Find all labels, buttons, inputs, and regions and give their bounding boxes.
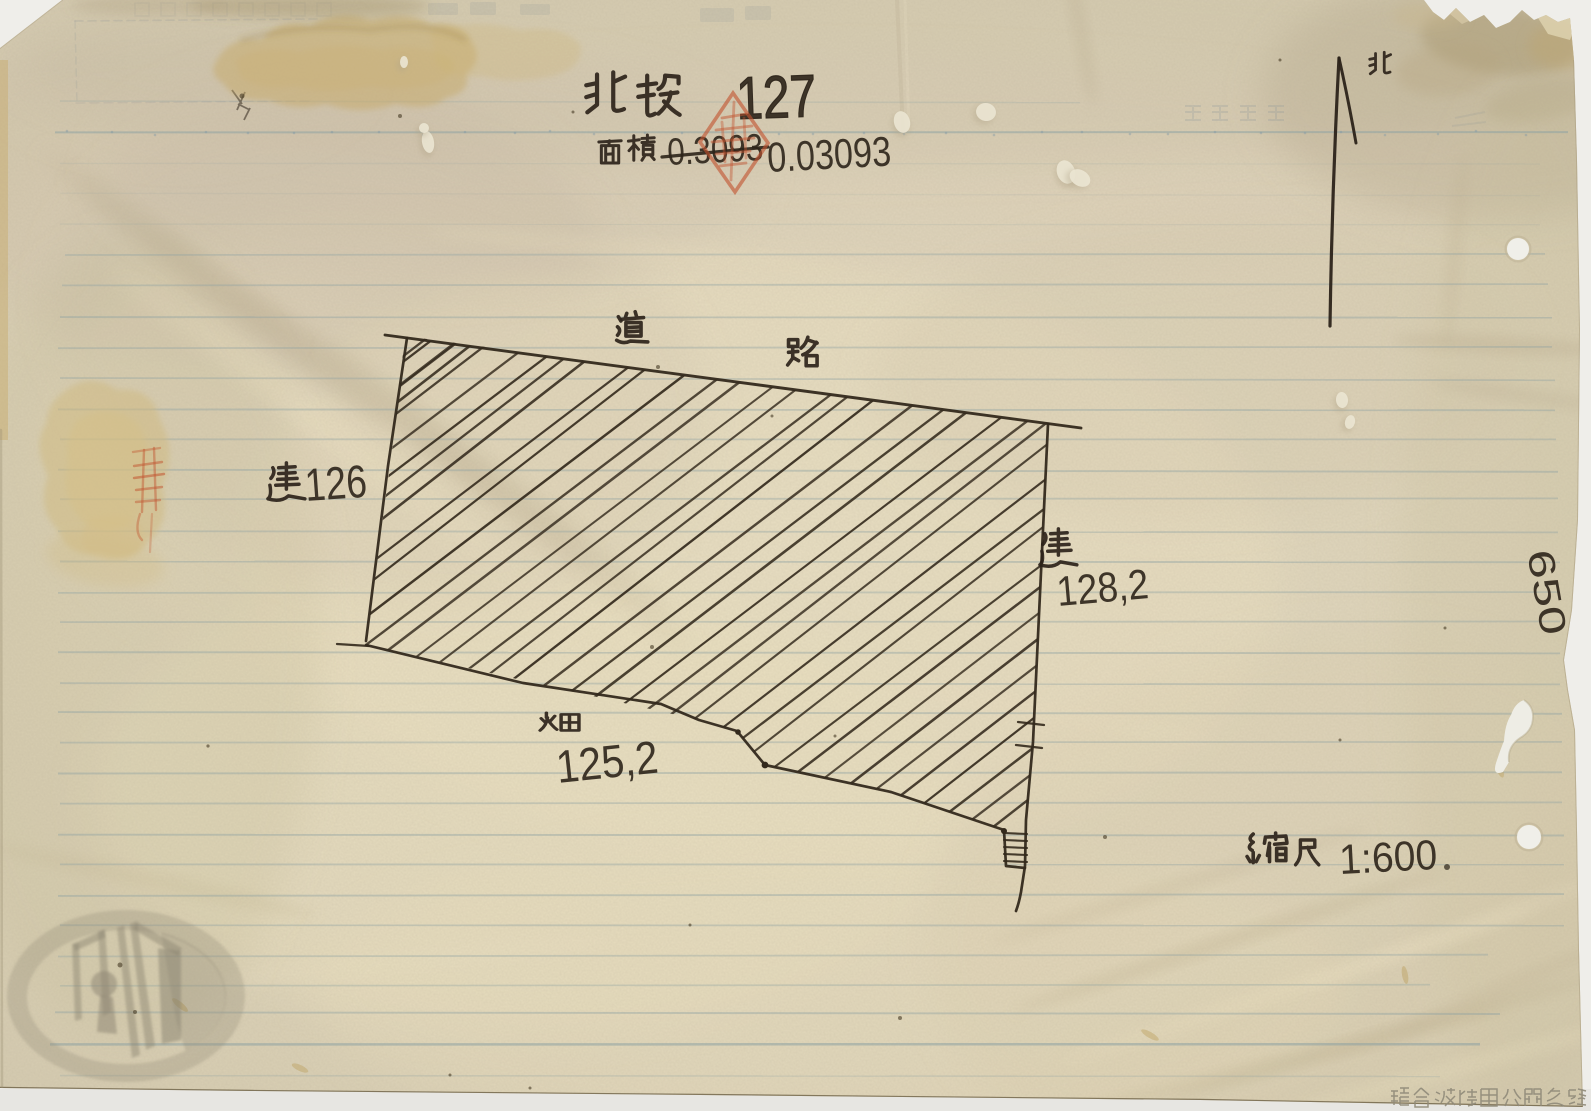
svg-text:1:600: 1:600 — [1338, 831, 1438, 883]
svg-text:126: 126 — [303, 455, 368, 511]
svg-text:127: 127 — [735, 62, 817, 132]
svg-text:0.03093: 0.03093 — [766, 128, 892, 181]
svg-text:125,2: 125,2 — [554, 731, 661, 793]
svg-text:128,2: 128,2 — [1055, 560, 1151, 615]
